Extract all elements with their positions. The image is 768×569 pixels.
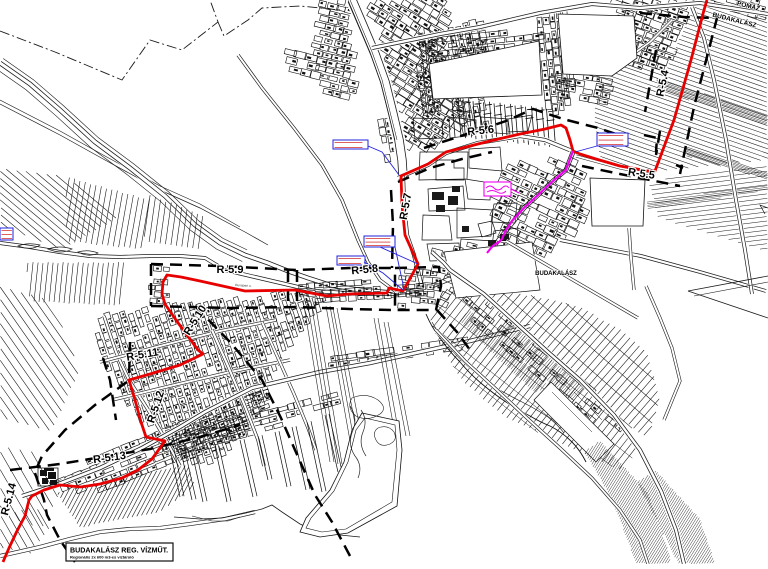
svg-text:BUDAKALÁSZ: BUDAKALÁSZ (535, 270, 577, 277)
svg-text:Regionális 2x 600 m3-es víztár: Regionális 2x 600 m3-es víztároló (70, 555, 134, 560)
svg-text:R-5.9: R-5.9 (217, 264, 244, 276)
svg-text:BUDAKALÁSZ REG. VÍZMŰT.: BUDAKALÁSZ REG. VÍZMŰT. (70, 546, 168, 555)
